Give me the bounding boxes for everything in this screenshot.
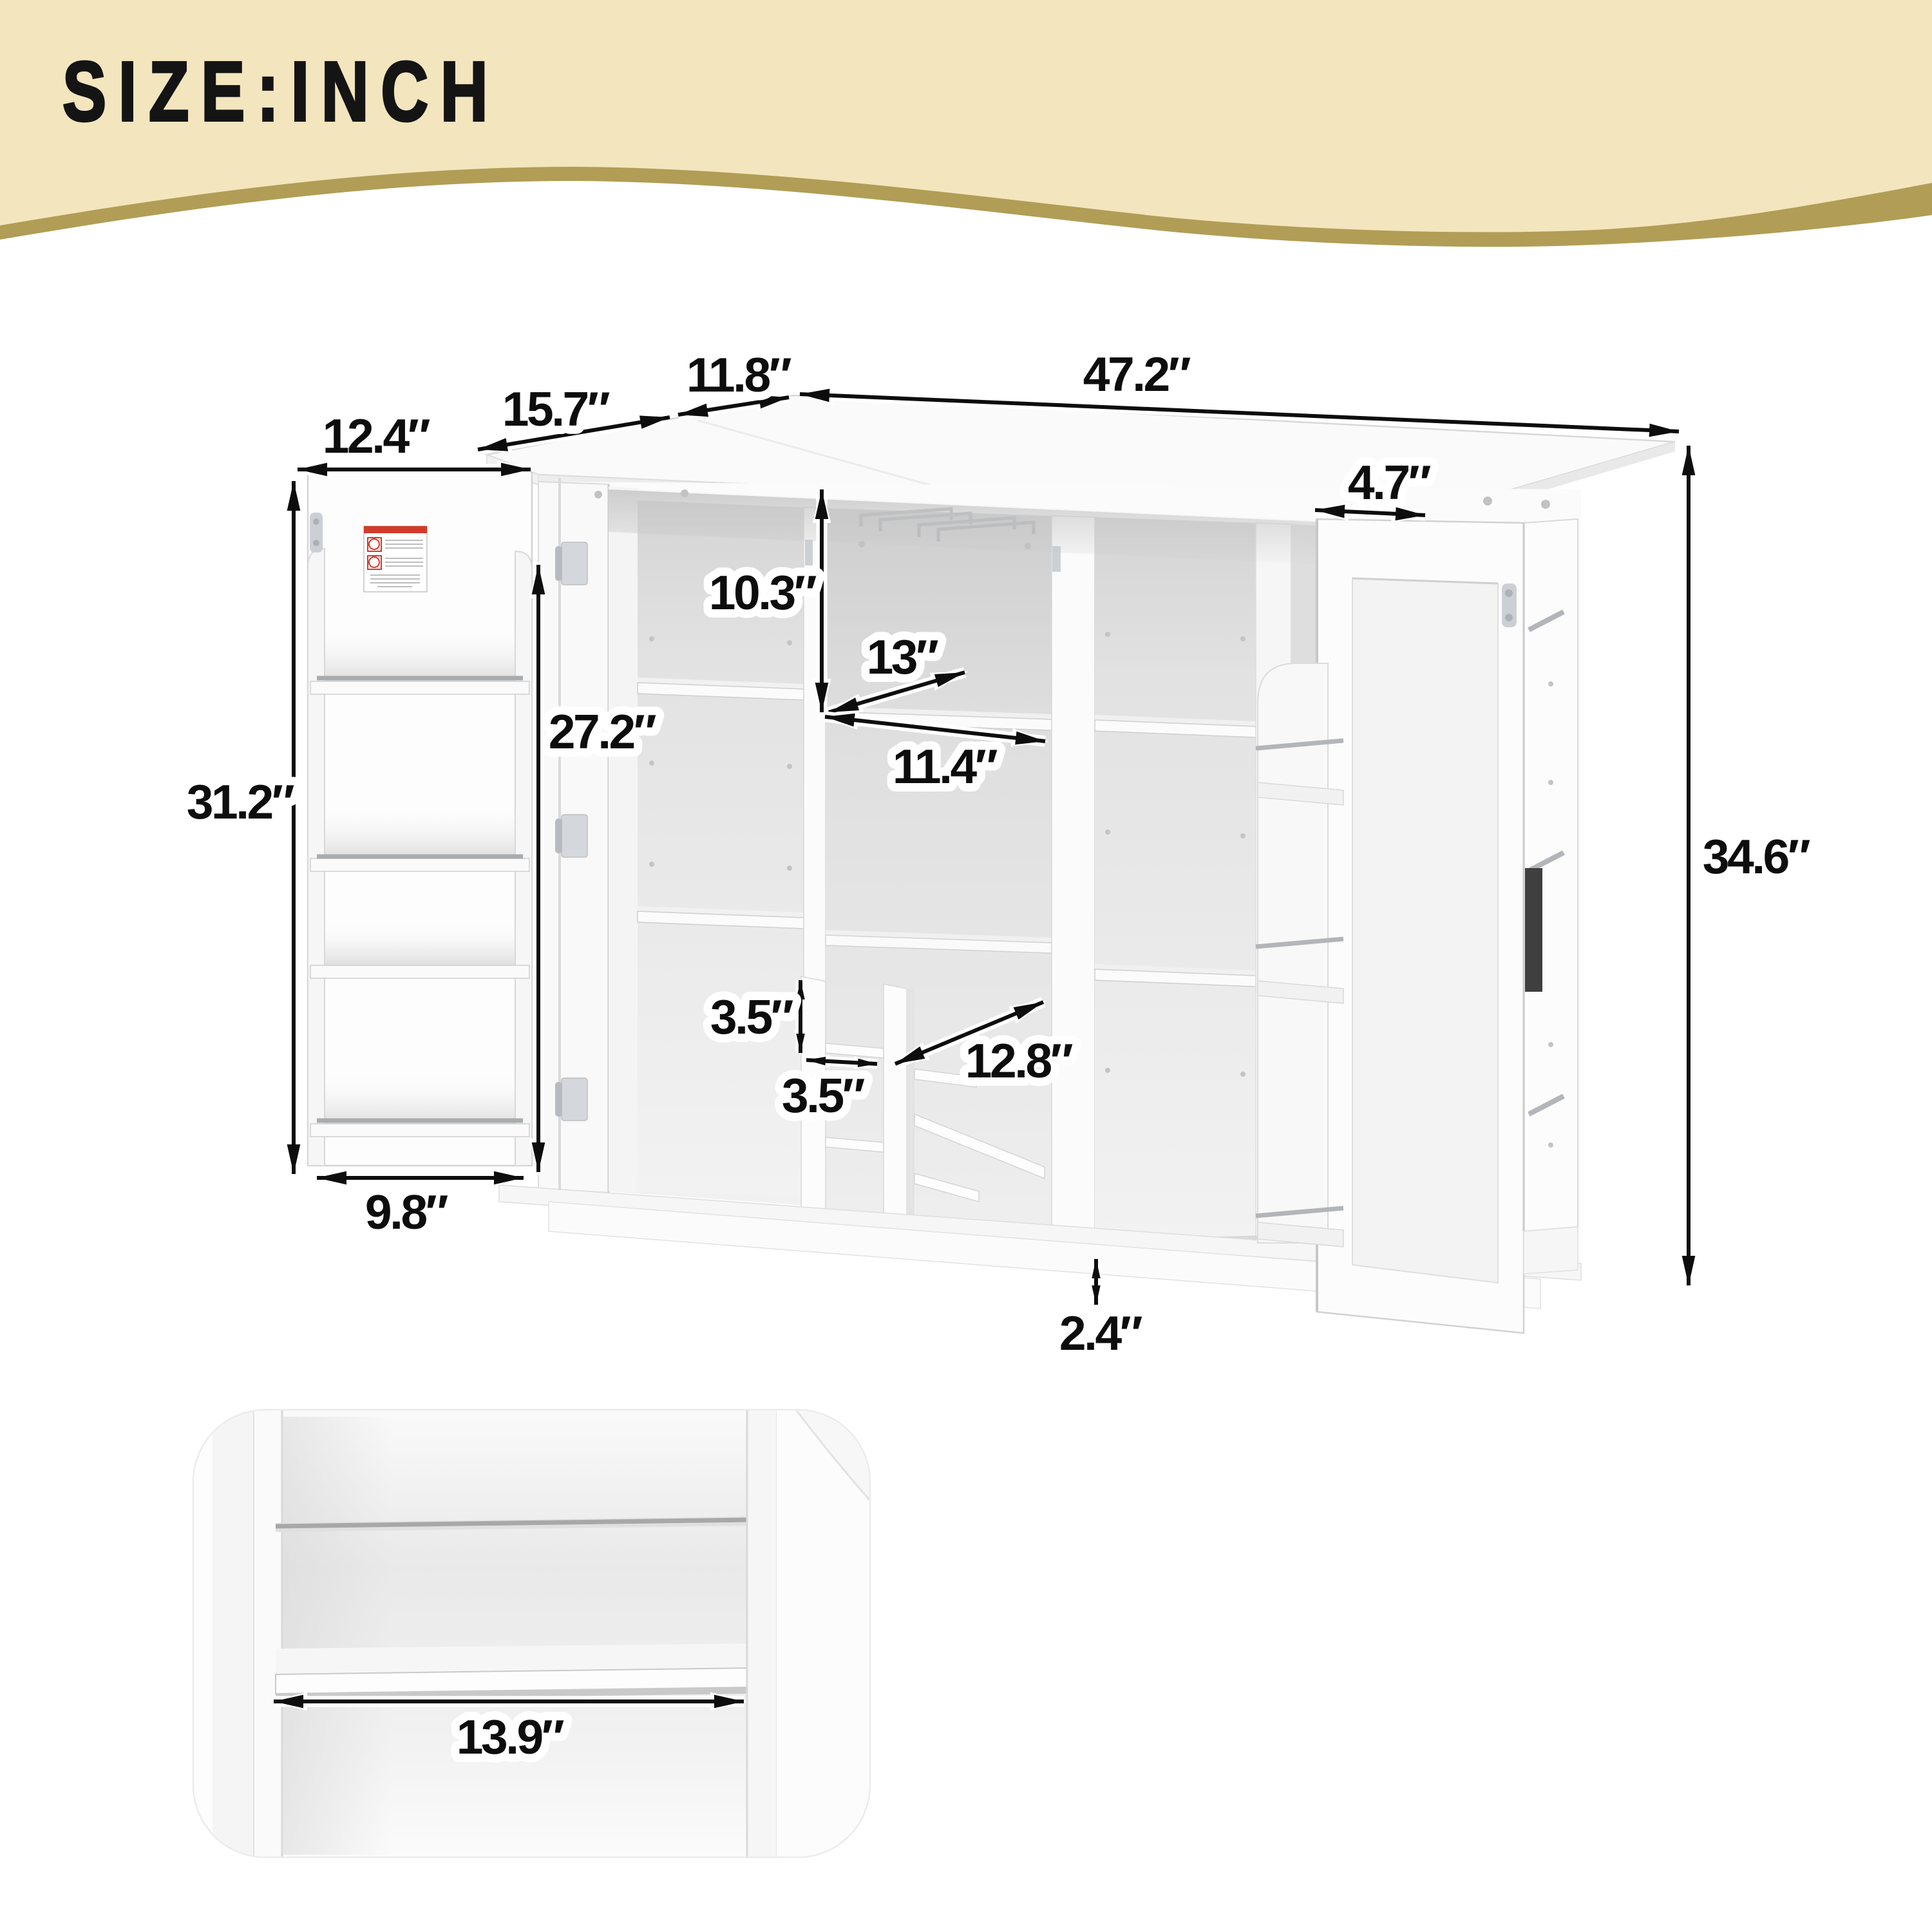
svg-text:4.7″: 4.7″ [1348,455,1431,509]
svg-text:27.2″: 27.2″ [549,705,656,759]
svg-text:3.5″: 3.5″ [710,990,793,1044]
svg-text:34.6″: 34.6″ [1703,829,1810,884]
svg-text:12.8″: 12.8″ [965,1034,1073,1088]
svg-text:SIZE:INCH: SIZE:INCH [62,44,500,138]
svg-text:11.4″: 11.4″ [893,739,998,793]
svg-text:10.3″: 10.3″ [709,565,817,620]
svg-text:9.8″: 9.8″ [365,1185,448,1239]
svg-text:3.5″: 3.5″ [782,1068,865,1122]
svg-text:13.9″: 13.9″ [457,1710,564,1764]
svg-text:2.4″: 2.4″ [1059,1306,1142,1360]
svg-text:13″: 13″ [867,630,938,684]
svg-text:47.2″: 47.2″ [1083,347,1191,401]
svg-text:31.2″: 31.2″ [187,775,294,829]
svg-text:15.7″: 15.7″ [502,382,610,436]
svg-text:12.4″: 12.4″ [323,409,430,463]
svg-text:11.8″: 11.8″ [687,348,791,402]
